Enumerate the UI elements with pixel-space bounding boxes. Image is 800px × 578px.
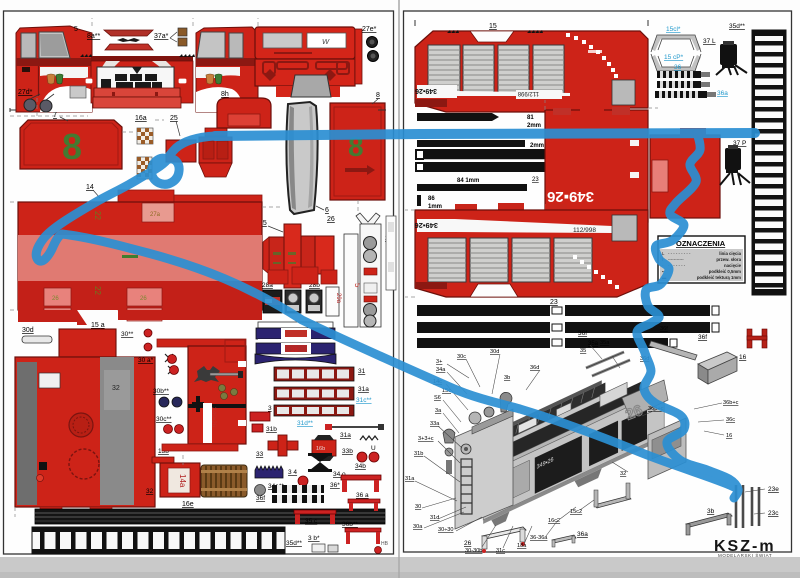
svg-text:podkleić 0,5mm: podkleić 0,5mm xyxy=(709,269,741,274)
svg-text:3+: 3+ xyxy=(436,359,442,365)
svg-text:36f: 36f xyxy=(698,334,707,341)
svg-text:30 a*: 30 a* xyxy=(138,357,154,364)
svg-text:przew. słora: przew. słora xyxy=(716,257,741,262)
svg-text:31a: 31a xyxy=(340,432,351,439)
svg-text:30c**: 30c** xyxy=(156,416,172,423)
svg-text:349▪26: 349▪26 xyxy=(210,407,217,428)
svg-text:349▪26: 349▪26 xyxy=(547,188,594,205)
svg-text:30d: 30d xyxy=(22,327,34,334)
svg-text:S6: S6 xyxy=(434,395,441,401)
svg-text:14a: 14a xyxy=(178,474,187,488)
svg-text:84 1mm: 84 1mm xyxy=(457,178,479,184)
svg-text:36a: 36a xyxy=(577,531,588,538)
svg-text:15cl*: 15cl* xyxy=(666,26,681,33)
svg-text:18a: 18a xyxy=(517,543,527,549)
svg-text:31c**: 31c** xyxy=(356,397,372,404)
svg-text:23c: 23c xyxy=(768,510,779,517)
svg-text:31: 31 xyxy=(358,368,366,375)
svg-text:14: 14 xyxy=(86,184,94,191)
svg-text:112/998: 112/998 xyxy=(517,90,539,96)
svg-text:2mm: 2mm xyxy=(530,143,544,149)
svg-text:81: 81 xyxy=(527,115,534,121)
svg-text:5: 5 xyxy=(74,26,78,33)
svg-text:32: 32 xyxy=(146,488,154,495)
svg-text:16e: 16e xyxy=(182,501,194,508)
svg-text:29: 29 xyxy=(291,348,298,354)
svg-text:31a: 31a xyxy=(358,386,369,393)
svg-text:36f: 36f xyxy=(578,330,587,337)
svg-text:nacięcie: nacięcie xyxy=(724,263,742,268)
svg-text:25: 25 xyxy=(170,115,178,122)
svg-text:8: 8 xyxy=(376,92,380,99)
svg-text:31a: 31a xyxy=(405,476,415,482)
svg-text:16: 16 xyxy=(726,433,732,439)
svg-text:linia cięcia: linia cięcia xyxy=(719,251,741,256)
svg-text:3+3+c: 3+3+c xyxy=(418,436,434,442)
svg-text:32: 32 xyxy=(620,471,626,477)
svg-text:23: 23 xyxy=(532,177,539,183)
svg-text:30**: 30** xyxy=(121,331,134,338)
svg-text:3 b*: 3 b* xyxy=(308,535,320,542)
svg-text:36: 36 xyxy=(674,64,682,71)
svg-text:23e: 23e xyxy=(768,486,779,493)
svg-text:31d: 31d xyxy=(430,515,439,521)
svg-text:36a: 36a xyxy=(717,90,728,97)
svg-text:2mm: 2mm xyxy=(527,123,541,129)
svg-text:W: W xyxy=(322,37,330,46)
svg-text:35 c: 35 c xyxy=(305,518,318,525)
svg-text:8: 8 xyxy=(62,126,82,167)
svg-text:OZNACZENIA: OZNACZENIA xyxy=(676,239,726,248)
svg-text:30-30b: 30-30b xyxy=(465,548,482,554)
svg-text:26: 26 xyxy=(464,540,472,547)
svg-text:3b: 3b xyxy=(504,375,510,381)
svg-text:27a: 27a xyxy=(150,212,161,218)
svg-text:31c: 31c xyxy=(496,548,505,554)
svg-text:16a: 16a xyxy=(135,115,147,122)
svg-text:349▪26: 349▪26 xyxy=(415,87,437,94)
svg-text:30b**: 30b** xyxy=(153,388,169,395)
svg-text:35a: 35a xyxy=(600,340,610,346)
svg-text:349▪26: 349▪26 xyxy=(414,221,438,230)
svg-text:15 a: 15 a xyxy=(91,322,105,329)
svg-text:6: 6 xyxy=(325,207,329,214)
svg-text:36*: 36* xyxy=(330,482,340,489)
svg-text:22: 22 xyxy=(93,286,102,295)
svg-text:podkleić tekturą 1mm: podkleić tekturą 1mm xyxy=(697,275,741,280)
svg-text:30c: 30c xyxy=(457,354,466,360)
svg-text:30a: 30a xyxy=(413,524,423,530)
svg-text:7: 7 xyxy=(53,112,57,119)
svg-text:36d: 36d xyxy=(530,365,539,371)
svg-text:26: 26 xyxy=(52,296,59,302)
svg-text:3: 3 xyxy=(268,405,272,412)
svg-text:26: 26 xyxy=(140,296,147,302)
svg-text:8h: 8h xyxy=(221,91,229,98)
svg-text:37 L: 37 L xyxy=(703,38,716,45)
svg-text:30d: 30d xyxy=(490,349,499,355)
svg-text:31d**: 31d** xyxy=(297,420,313,427)
svg-text:27d*: 27d* xyxy=(18,89,33,96)
svg-text:35a: 35a xyxy=(588,341,599,347)
svg-text:3b: 3b xyxy=(707,508,715,515)
svg-text:3a: 3a xyxy=(435,408,442,414)
svg-text:36b+c: 36b+c xyxy=(723,400,739,406)
svg-text:35d**: 35d** xyxy=(729,23,745,30)
svg-text:-----------: ----------- xyxy=(668,257,684,262)
svg-text:33a: 33a xyxy=(430,421,440,427)
svg-text:15: 15 xyxy=(489,23,497,30)
svg-text:31b: 31b xyxy=(266,426,277,433)
svg-text:3 4: 3 4 xyxy=(288,469,297,476)
svg-text:36c: 36c xyxy=(726,417,735,423)
svg-text:27e*: 27e* xyxy=(362,26,377,33)
svg-text:36 a: 36 a xyxy=(356,492,369,499)
svg-text:26: 26 xyxy=(327,216,335,223)
svg-text:MODELARSKI ŚWIAT: MODELARSKI ŚWIAT xyxy=(718,551,772,558)
svg-text:33b: 33b xyxy=(342,448,353,455)
svg-text:31b: 31b xyxy=(414,451,423,457)
svg-text:36f: 36f xyxy=(660,326,668,332)
svg-text:15 cP*: 15 cP* xyxy=(664,54,684,61)
svg-text:36b**: 36b** xyxy=(342,521,358,528)
svg-text:29a: 29a xyxy=(335,293,341,304)
svg-text:37a*: 37a* xyxy=(154,33,169,40)
svg-text:16b: 16b xyxy=(316,446,325,452)
svg-text:36-36a: 36-36a xyxy=(530,535,548,541)
svg-text:35: 35 xyxy=(580,348,586,354)
svg-text:23: 23 xyxy=(550,299,558,306)
svg-text:16: 16 xyxy=(739,354,747,361)
svg-text:HB: HB xyxy=(381,541,389,547)
svg-text:1mm: 1mm xyxy=(428,204,442,210)
svg-text:30: 30 xyxy=(415,504,421,510)
svg-text:16c2: 16c2 xyxy=(548,518,560,524)
svg-text:32: 32 xyxy=(112,385,120,392)
svg-text:33: 33 xyxy=(256,451,264,458)
svg-text:35d**: 35d** xyxy=(286,540,302,547)
svg-text:36f: 36f xyxy=(256,495,265,502)
svg-text:34a: 34a xyxy=(436,367,446,373)
svg-text:22: 22 xyxy=(93,211,102,220)
svg-text:U: U xyxy=(371,445,376,452)
svg-text:30÷30: 30÷30 xyxy=(438,527,454,533)
svg-text:- - - - - - - - -: - - - - - - - - - xyxy=(668,251,691,256)
svg-text:86: 86 xyxy=(428,196,435,202)
svg-text:34b: 34b xyxy=(355,463,366,470)
svg-text:112/998: 112/998 xyxy=(573,227,596,234)
svg-text:8a**: 8a** xyxy=(87,33,101,40)
